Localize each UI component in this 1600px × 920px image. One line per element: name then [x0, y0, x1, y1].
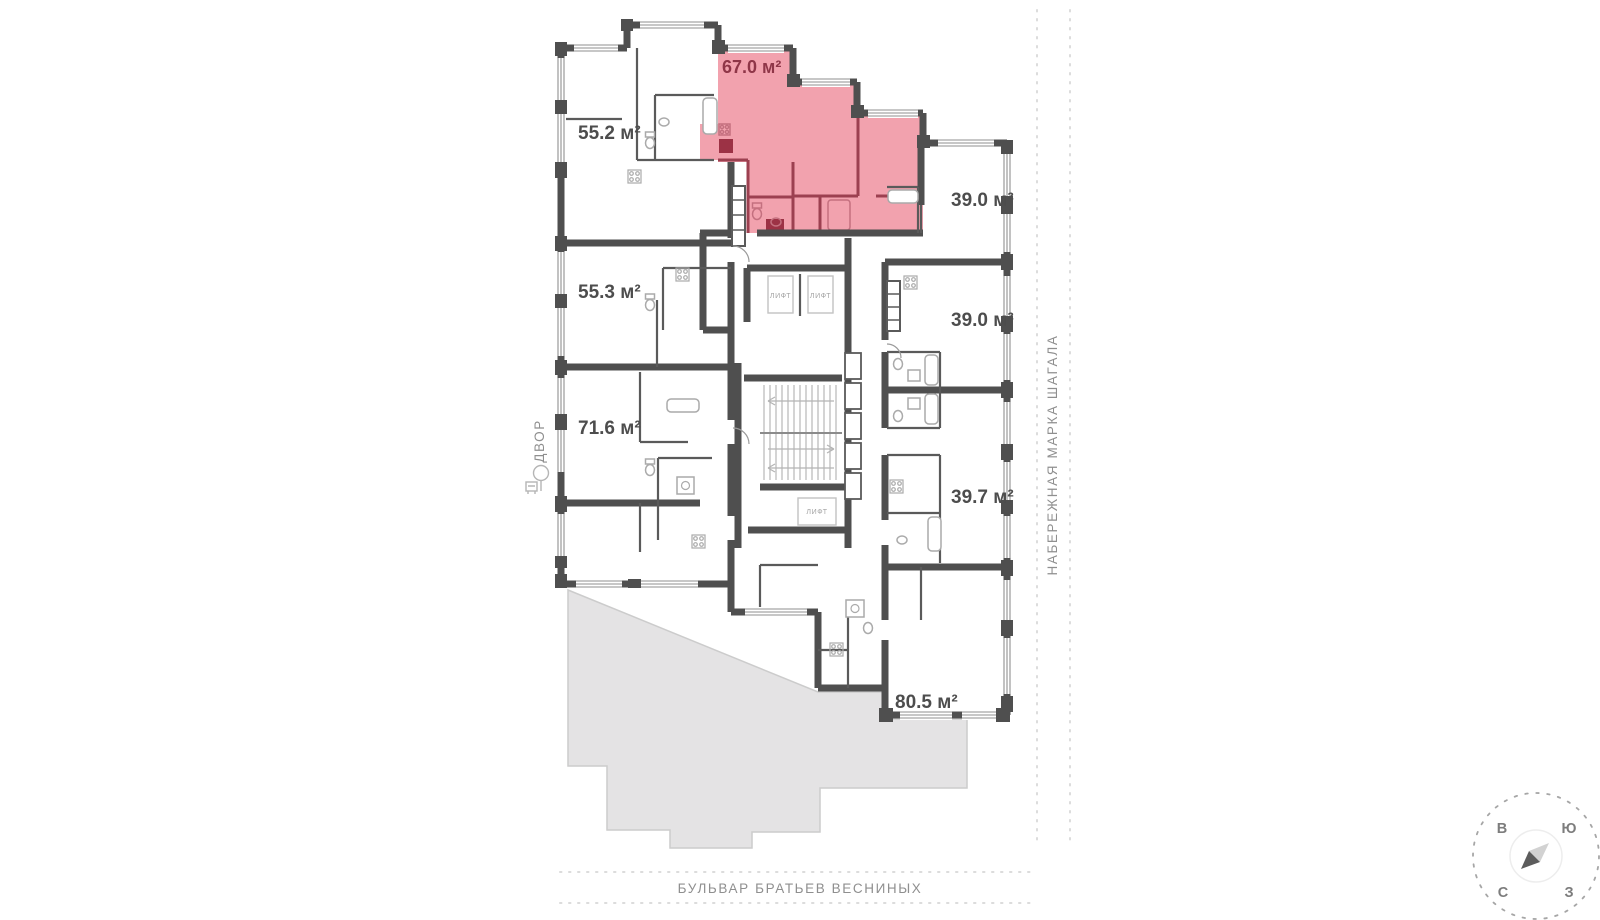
apartment-area-label-39-0-a[interactable]: 39.0 м² [951, 190, 1014, 211]
elevator-1-label: ЛИФТ [770, 293, 791, 300]
apartment-area-label-71-6[interactable]: 71.6 м² [578, 418, 641, 439]
compass-north: С [1498, 885, 1509, 901]
compass-east: В [1497, 821, 1507, 837]
apartment-area-label-55-2[interactable]: 55.2 м² [578, 123, 641, 144]
elevator-2-label: ЛИФТ [810, 293, 831, 300]
elevator-3: ЛИФТ [798, 498, 836, 525]
apartment-area-label-80-5[interactable]: 80.5 м² [895, 692, 958, 713]
elevator-3-label: ЛИФТ [806, 509, 827, 516]
elevator-1: ЛИФТ [768, 276, 793, 313]
floor-plan: ЛИФТ ЛИФТ ЛИФТ [0, 0, 1600, 920]
courtyard-tree-icon [526, 466, 549, 495]
apartment-area-label-67-0[interactable]: 67.0 м² [722, 57, 781, 77]
windows-left-wall [555, 42, 567, 588]
compass-west: З [1564, 885, 1573, 901]
stairwell [760, 385, 842, 480]
apartment-67-0-door [719, 139, 733, 153]
compass-south: Ю [1562, 821, 1577, 837]
apartment-area-label-39-0-b[interactable]: 39.0 м² [951, 310, 1014, 331]
vent-shafts [845, 353, 861, 499]
elevator-2: ЛИФТ [808, 276, 833, 313]
apartment-area-label-39-7[interactable]: 39.7 м² [951, 487, 1014, 508]
compass: В Ю С З [1473, 793, 1599, 919]
street-label-bottom: БУЛЬВАР БРАТЬЕВ ВЕСНИНЫХ [678, 881, 923, 896]
windows-right-wall [1001, 140, 1013, 712]
courtyard-label: ДВОР [532, 419, 547, 463]
apartment-area-label-55-3[interactable]: 55.3 м² [578, 282, 641, 303]
street-label-right: НАБЕРЕЖНАЯ МАРКА ШАГАЛА [1045, 335, 1060, 576]
floor-plan-page: ЛИФТ ЛИФТ ЛИФТ [0, 0, 1600, 920]
